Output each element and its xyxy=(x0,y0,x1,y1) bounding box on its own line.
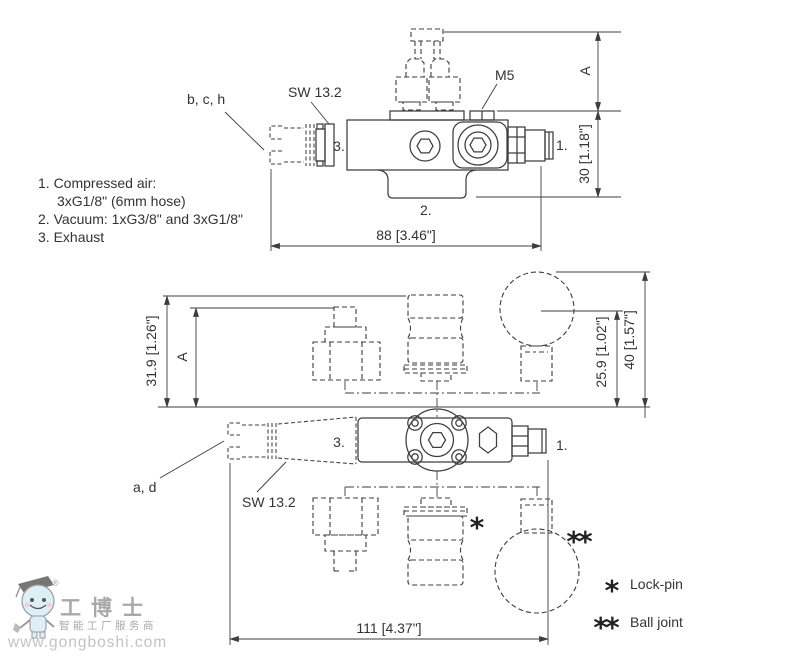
lockpin-marker: * xyxy=(470,511,485,544)
side-view-dimensions xyxy=(271,32,621,251)
legend-lockpin-label: Lock-pin xyxy=(630,576,683,592)
side-view-drawing: b, c, h SW 13.2 M5 3. 1. 2. A 30 [1.18"]… xyxy=(187,29,621,251)
note-line-4: 3. Exhaust xyxy=(38,229,104,245)
legend-lockpin-symbol: * xyxy=(605,574,620,607)
port-label-2: 2. xyxy=(420,202,432,218)
legend-balljoint-symbol: ** xyxy=(593,611,620,644)
label-ad: a, d xyxy=(133,479,156,495)
dim-40: 40 [1.57"] xyxy=(621,310,637,369)
legend-balljoint-label: Ball joint xyxy=(630,614,683,630)
exhaust-fitting-side xyxy=(316,124,334,166)
leader-ad xyxy=(160,441,224,478)
legend: * Lock-pin ** Ball joint xyxy=(593,574,683,644)
dim-a-top: A xyxy=(577,66,593,76)
label-bch: b, c, h xyxy=(187,91,225,107)
upper-axis-lines xyxy=(345,381,540,417)
air-fitting-side xyxy=(508,127,553,163)
port-label-1-plan: 1. xyxy=(556,437,568,453)
watermark-url: www.gongboshi.com xyxy=(7,634,167,651)
hose-stub-phantom xyxy=(270,124,314,166)
watermark-registered: ® xyxy=(52,578,59,588)
plan-view-dimensions xyxy=(163,272,650,645)
dim-31-9: 31.9 [1.26"] xyxy=(143,315,159,386)
balljoint-marker: ** xyxy=(566,525,593,558)
leader-m5 xyxy=(482,84,497,109)
port-notes: 1. Compressed air: 3xG1/8" (6mm hose) 2.… xyxy=(38,175,243,245)
dim-25-9: 25.9 [1.02"] xyxy=(593,316,609,387)
technical-drawing-page: b, c, h SW 13.2 M5 3. 1. 2. A 30 [1.18"]… xyxy=(0,0,800,659)
dim-111: 111 [4.37"] xyxy=(356,620,421,636)
upper-accessories-phantom xyxy=(313,272,574,381)
leader-sw132-bottom xyxy=(257,462,286,492)
watermark-mascot xyxy=(13,576,54,638)
watermark-brand: 工博士 xyxy=(60,596,153,620)
label-sw132-top: SW 13.2 xyxy=(288,84,342,100)
drawing-svg: b, c, h SW 13.2 M5 3. 1. 2. A 30 [1.18"]… xyxy=(0,0,800,659)
note-line-1: 1. Compressed air: xyxy=(38,175,156,191)
mascot-head xyxy=(22,585,54,617)
mascot-body xyxy=(30,616,46,632)
port-label-3: 3. xyxy=(333,138,345,154)
mascot-wrench xyxy=(13,623,21,633)
lower-axis-lines xyxy=(345,471,540,498)
dim-88: 88 [3.46"] xyxy=(376,227,435,243)
watermark-slogan: 智能工厂服务商 xyxy=(59,619,157,632)
leader-sw132 xyxy=(311,102,329,124)
note-line-3: 2. Vacuum: 1xG3/8" and 3xG1/8" xyxy=(38,211,243,227)
watermark: ® 工博士 智能工厂服务商 www.gongboshi.com xyxy=(7,576,167,651)
valve-body-plan xyxy=(358,409,546,471)
port-label-1: 1. xyxy=(556,137,568,153)
dim-a-bottom: A xyxy=(174,352,190,362)
plan-view-drawing: 31.9 [1.26"] A 25.9 [1.02"] 40 [1.57"] 1… xyxy=(133,272,650,645)
top-fittings-phantom xyxy=(396,29,460,110)
port-label-3-plan: 3. xyxy=(333,434,345,450)
leader-bch xyxy=(225,112,264,150)
label-sw132-bottom: SW 13.2 xyxy=(242,494,296,510)
label-m5: M5 xyxy=(495,67,515,83)
note-line-2: 3xG1/8" (6mm hose) xyxy=(57,193,186,209)
dim-30: 30 [1.18"] xyxy=(576,124,592,183)
lower-accessories-phantom xyxy=(313,498,579,613)
valve-body-side xyxy=(347,111,508,198)
